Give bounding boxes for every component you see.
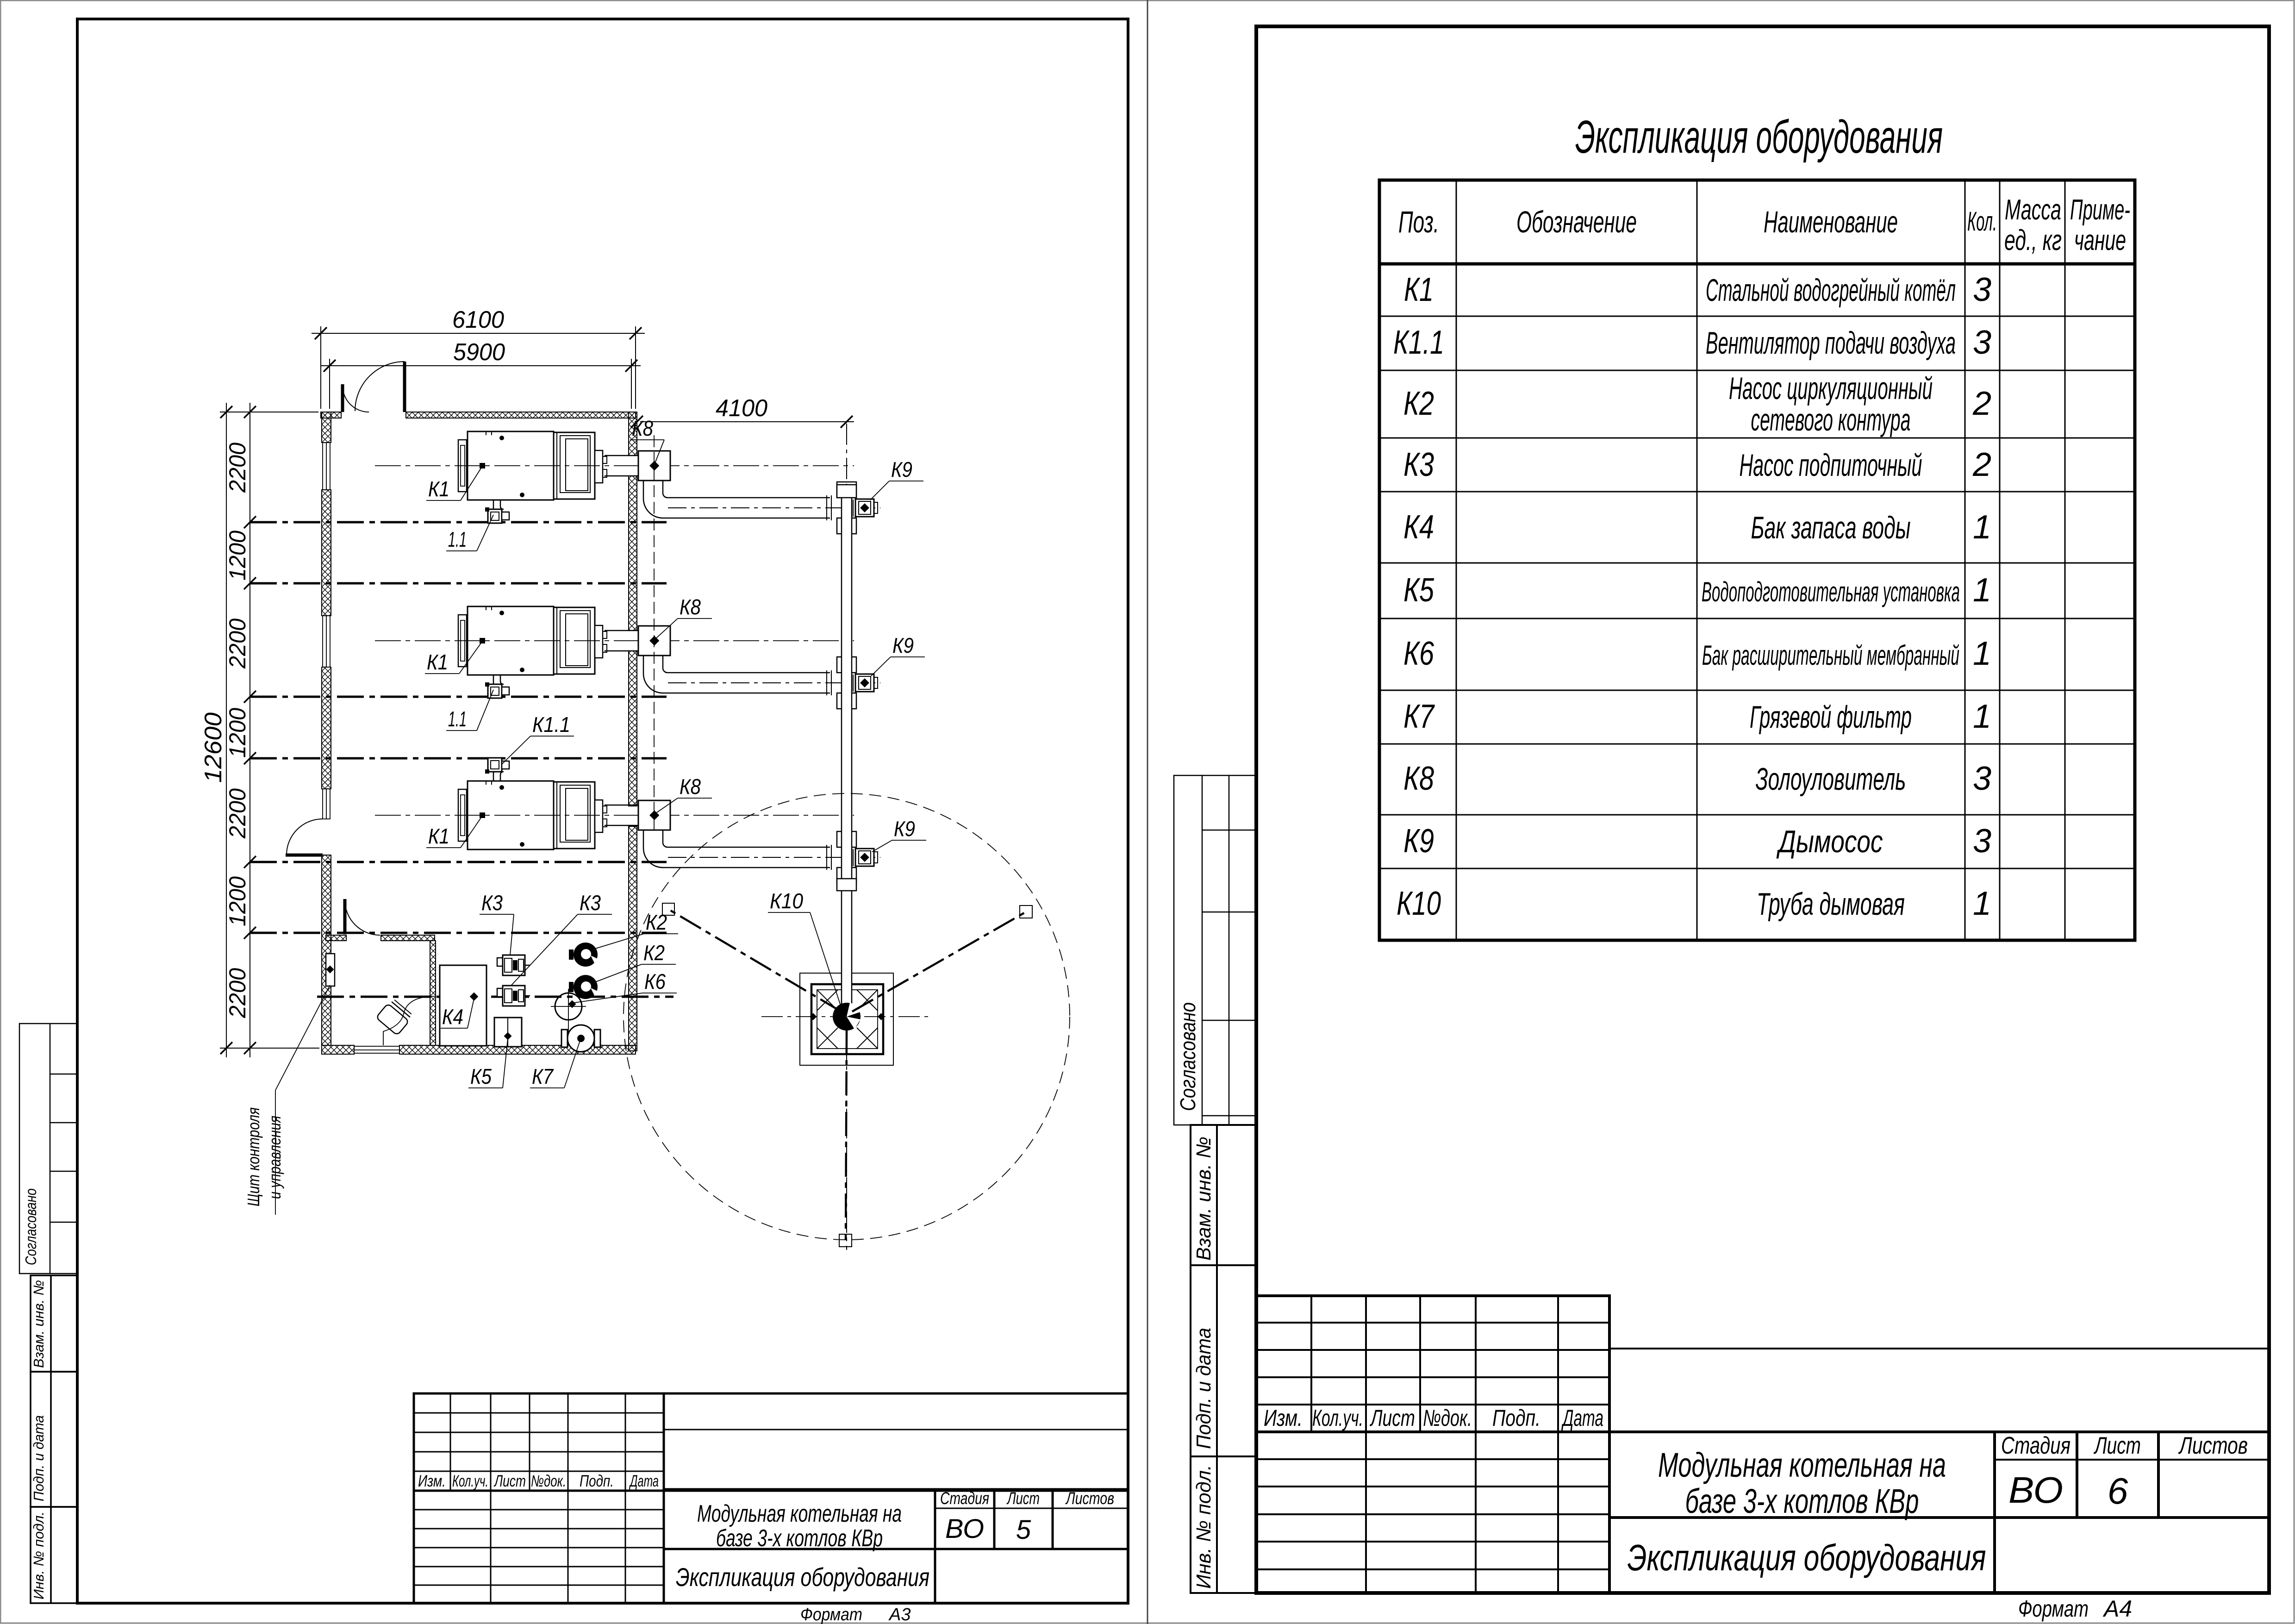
svg-text:Поз.: Поз.: [1398, 205, 1439, 239]
svg-text:базе 3-х котлов КВр: базе 3-х котлов КВр: [716, 1525, 883, 1552]
svg-text:1: 1: [1973, 698, 1991, 735]
svg-text:К3: К3: [1403, 446, 1434, 483]
svg-text:и управления: и управления: [265, 1116, 284, 1199]
svg-text:1.1: 1.1: [448, 707, 467, 731]
svg-text:Стальной водогрейный котёл: Стальной водогрейный котёл: [1706, 273, 1956, 308]
svg-text:К7: К7: [1403, 698, 1435, 735]
svg-text:Экспликация оборудования: Экспликация оборудования: [676, 1562, 929, 1592]
svg-text:Золоуловитель: Золоуловитель: [1756, 762, 1906, 797]
svg-text:Бак запаса воды: Бак запаса воды: [1751, 510, 1911, 545]
svg-text:3: 3: [1973, 324, 1991, 361]
svg-text:ВО: ВО: [2008, 1469, 2063, 1511]
svg-text:4100: 4100: [716, 395, 767, 422]
svg-text:Согласовано: Согласовано: [22, 1188, 39, 1265]
svg-text:К10: К10: [1397, 885, 1441, 922]
svg-text:Модульная котельная на: Модульная котельная на: [697, 1500, 902, 1527]
svg-text:К9: К9: [892, 633, 914, 657]
svg-text:1200: 1200: [225, 531, 250, 581]
svg-text:Дата: Дата: [1561, 1405, 1603, 1431]
svg-text:К4: К4: [1403, 509, 1434, 546]
svg-text:Подп.: Подп.: [1492, 1405, 1540, 1431]
svg-text:6100: 6100: [452, 306, 504, 333]
svg-text:Вентилятор подачи воздуха: Вентилятор подачи воздуха: [1706, 325, 1956, 361]
svg-text:2200: 2200: [225, 788, 250, 839]
svg-text:К5: К5: [470, 1064, 492, 1088]
svg-text:Стадия: Стадия: [2001, 1432, 2070, 1459]
svg-text:Подп. и дата: Подп. и дата: [31, 1415, 47, 1501]
svg-text:К3: К3: [481, 891, 503, 915]
svg-text:Кол.: Кол.: [1967, 206, 1997, 237]
svg-text:Модульная котельная на: Модульная котельная на: [1658, 1446, 1946, 1484]
svg-text:Экспликация оборудования: Экспликация оборудования: [1575, 111, 1943, 163]
svg-text:2: 2: [1972, 446, 1991, 483]
svg-text:К9: К9: [894, 817, 915, 841]
svg-text:Инв. № подл.: Инв. № подл.: [1192, 1465, 1215, 1589]
svg-text:Формат: Формат: [800, 1605, 862, 1624]
svg-text:А3: А3: [888, 1605, 911, 1624]
svg-text:1200: 1200: [225, 708, 250, 758]
svg-text:К1.1: К1.1: [532, 712, 570, 737]
svg-text:№док.: №док.: [531, 1472, 566, 1490]
svg-text:К2: К2: [643, 941, 665, 965]
svg-text:Экспликация оборудования: Экспликация оборудования: [1628, 1537, 1986, 1578]
svg-text:Листов: Листов: [1065, 1489, 1114, 1508]
svg-text:1: 1: [1973, 572, 1991, 609]
svg-text:Взам. инв. №: Взам. инв. №: [31, 1280, 47, 1368]
svg-text:1200: 1200: [225, 876, 250, 926]
svg-text:Лист: Лист: [2094, 1432, 2141, 1459]
svg-text:5900: 5900: [453, 339, 505, 366]
svg-text:К7: К7: [532, 1064, 554, 1088]
svg-text:К8: К8: [632, 416, 653, 440]
svg-text:Изм.: Изм.: [418, 1472, 446, 1490]
svg-text:К6: К6: [644, 969, 666, 993]
svg-text:К4: К4: [442, 1005, 463, 1029]
svg-text:Кол.уч.: Кол.уч.: [452, 1472, 488, 1490]
svg-text:К8: К8: [680, 775, 701, 799]
svg-text:К3: К3: [580, 891, 601, 915]
svg-text:ед., кг: ед., кг: [2004, 225, 2062, 256]
svg-text:3: 3: [1973, 271, 1991, 308]
svg-text:К1: К1: [428, 477, 449, 501]
svg-text:Согласовано: Согласовано: [1176, 1002, 1200, 1111]
svg-text:К1.1: К1.1: [1393, 324, 1444, 361]
svg-text:К8: К8: [680, 595, 701, 619]
svg-text:№док.: №док.: [1423, 1405, 1472, 1431]
svg-text:2200: 2200: [225, 968, 250, 1018]
svg-text:Дымосос: Дымосос: [1776, 824, 1883, 859]
svg-text:базе 3-х котлов КВр: базе 3-х котлов КВр: [1685, 1482, 1919, 1520]
svg-text:Труба дымовая: Труба дымовая: [1757, 887, 1905, 922]
svg-text:ВО: ВО: [945, 1514, 984, 1544]
svg-text:Приме-: Приме-: [2070, 194, 2130, 226]
svg-text:К2: К2: [1403, 385, 1434, 422]
svg-text:Водоподготовительная установка: Водоподготовительная установка: [1702, 576, 1960, 607]
svg-text:Изм.: Изм.: [1264, 1405, 1303, 1431]
svg-text:чание: чание: [2074, 225, 2126, 256]
svg-text:1: 1: [1973, 635, 1991, 672]
svg-text:К1: К1: [428, 824, 449, 848]
svg-text:К1: К1: [1404, 271, 1434, 308]
svg-text:К10: К10: [770, 889, 803, 913]
svg-text:Насос подпиточный: Насос подпиточный: [1740, 448, 1922, 483]
svg-text:К2: К2: [646, 910, 667, 934]
svg-text:3: 3: [1973, 823, 1991, 860]
svg-text:Листов: Листов: [2178, 1432, 2248, 1459]
svg-text:А4: А4: [2102, 1596, 2132, 1622]
svg-text:К9: К9: [891, 457, 912, 481]
svg-text:1: 1: [1973, 509, 1991, 546]
svg-text:Обозначение: Обозначение: [1516, 205, 1637, 239]
svg-text:Стадия: Стадия: [940, 1489, 989, 1508]
svg-text:1: 1: [1973, 885, 1991, 922]
svg-text:К1: К1: [427, 650, 448, 674]
svg-text:К8: К8: [1403, 760, 1434, 797]
svg-text:Наименование: Наименование: [1764, 205, 1898, 239]
svg-text:Грязевой фильтр: Грязевой фильтр: [1750, 700, 1912, 735]
svg-text:Кол.уч.: Кол.уч.: [1312, 1405, 1363, 1431]
svg-text:Лист: Лист: [1370, 1405, 1415, 1431]
svg-text:Взам. инв. №: Взам. инв. №: [1192, 1137, 1215, 1261]
svg-text:К6: К6: [1403, 635, 1434, 672]
svg-text:3: 3: [1973, 760, 1991, 797]
svg-text:2: 2: [1972, 385, 1991, 422]
svg-text:6: 6: [2108, 1470, 2128, 1512]
svg-text:Подп. и дата: Подп. и дата: [1192, 1328, 1215, 1449]
svg-text:Подп.: Подп.: [580, 1472, 614, 1490]
svg-text:5: 5: [1016, 1515, 1031, 1545]
svg-text:Инв. № подл.: Инв. № подл.: [31, 1512, 47, 1599]
svg-text:12600: 12600: [200, 712, 227, 783]
svg-text:Дата: Дата: [629, 1472, 659, 1490]
svg-text:Формат: Формат: [2018, 1596, 2089, 1622]
svg-text:Щит контроля: Щит контроля: [244, 1107, 263, 1206]
svg-text:Лист: Лист: [1007, 1489, 1040, 1508]
svg-text:1.1: 1.1: [448, 527, 467, 551]
svg-text:Бак расширительный мембранный: Бак расширительный мембранный: [1702, 640, 1959, 671]
svg-text:Масса: Масса: [2005, 194, 2061, 226]
svg-text:2200: 2200: [225, 618, 250, 669]
svg-text:2200: 2200: [225, 443, 250, 493]
svg-text:К9: К9: [1403, 823, 1434, 860]
svg-text:Насос циркуляционный: Насос циркуляционный: [1729, 371, 1933, 406]
svg-text:Лист: Лист: [493, 1472, 526, 1490]
svg-text:сетевого контура: сетевого контура: [1751, 402, 1911, 437]
svg-text:К5: К5: [1403, 572, 1434, 609]
